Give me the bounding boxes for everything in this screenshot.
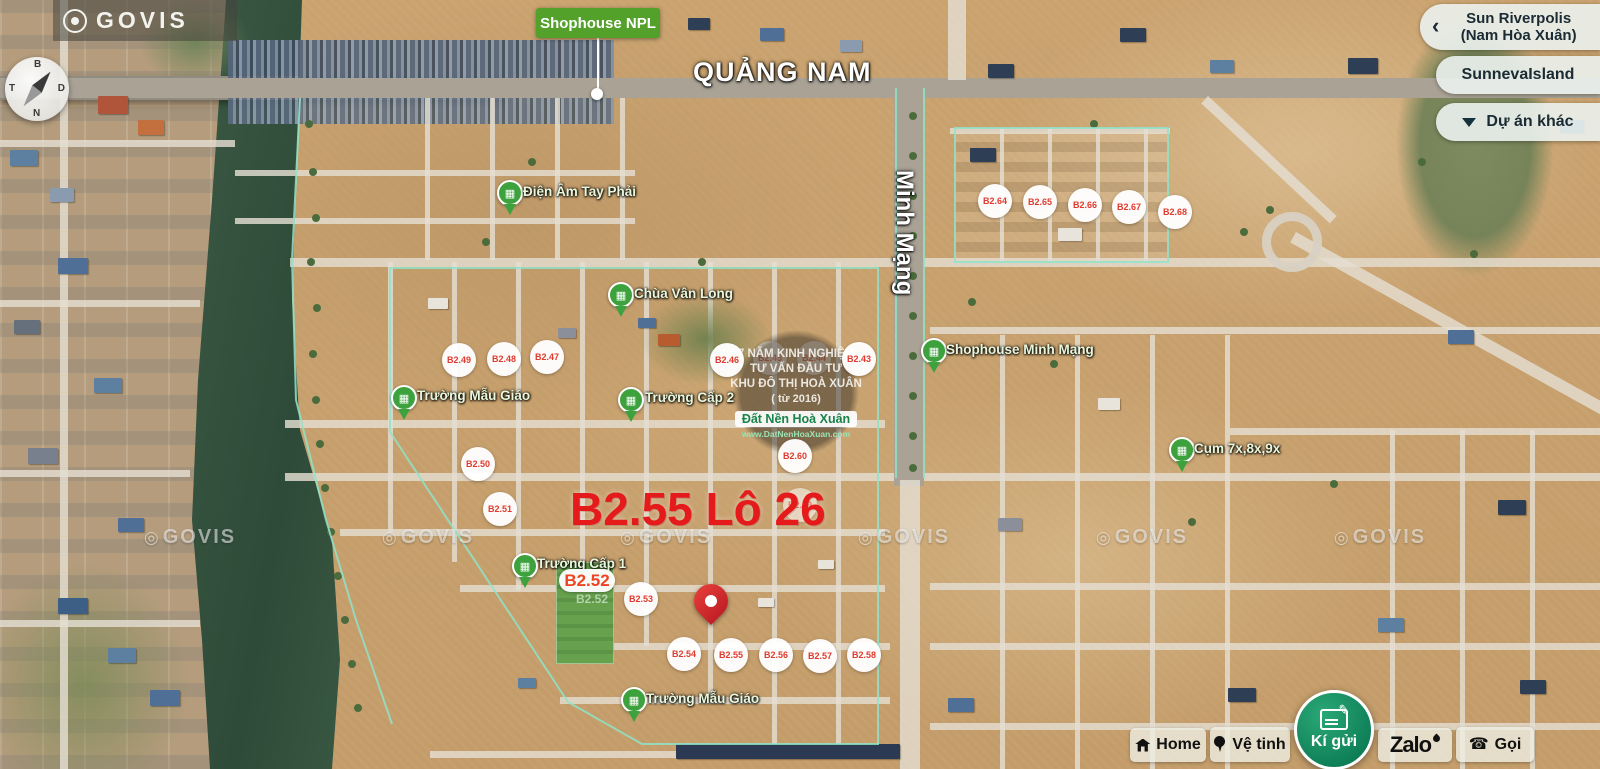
road	[452, 262, 457, 562]
pin-tail	[628, 711, 640, 722]
call-button-label: Gọi	[1495, 736, 1522, 754]
building	[98, 96, 128, 114]
home-icon	[1135, 739, 1150, 752]
poi-pin-truong-mau-giao-tay[interactable]: ▦	[391, 385, 417, 421]
diagonal-road	[1201, 96, 1337, 223]
pin-tail	[519, 577, 531, 588]
building	[28, 448, 58, 464]
poi-pin-truong-cap-2[interactable]: ▦	[618, 387, 644, 423]
building	[150, 690, 180, 706]
compass-north-label: B	[34, 59, 41, 70]
lot-badge-b2-53[interactable]: B2.53	[624, 582, 658, 616]
lot-badge-b2-51[interactable]: B2.51	[483, 492, 517, 526]
building	[818, 560, 834, 569]
note-pencil-icon: ✎	[1320, 709, 1348, 730]
lot-badge-b2-44[interactable]: B2.44	[797, 341, 831, 375]
building	[1098, 398, 1120, 410]
satellite-button-label: Vệ tinh	[1232, 736, 1285, 754]
flag-shophouse-npl[interactable]: Shophouse NPL	[536, 8, 660, 38]
poi-pin-cum-7x-8x-9x[interactable]: ▦	[1169, 437, 1195, 473]
school-pin-icon: ▦	[608, 282, 634, 308]
building	[840, 40, 862, 52]
building	[758, 598, 774, 607]
road	[900, 480, 920, 769]
building	[638, 318, 656, 328]
building	[518, 678, 536, 688]
school-pin-icon: ▦	[1169, 437, 1195, 463]
building	[988, 64, 1014, 78]
road	[930, 327, 1600, 334]
poi-label-shophouse-minh-mang: Shophouse Minh Mạng	[946, 342, 1094, 357]
watermark-line: KHU ĐÔ THỊ HOÀ XUÂN	[730, 377, 862, 392]
school-pin-icon: ▦	[497, 180, 523, 206]
tree-cluster	[0, 0, 8, 8]
road	[620, 98, 625, 260]
chevron-down-icon	[1462, 118, 1476, 127]
building	[658, 334, 680, 346]
road	[1075, 335, 1080, 769]
road	[1390, 430, 1395, 769]
road	[235, 218, 635, 224]
building	[10, 150, 38, 166]
lot-badge-b2-57[interactable]: B2.57	[803, 639, 837, 673]
call-button[interactable]: ☎ Gọi	[1456, 727, 1534, 762]
lot-badge-b2-64[interactable]: B2.64	[978, 184, 1012, 218]
poi-label-truong-cap-2: Trường Cấp 2	[645, 390, 734, 405]
chevron-left-icon: ‹	[1432, 13, 1439, 39]
road	[1000, 335, 1005, 769]
lot-badge-b2-54[interactable]: B2.54	[667, 637, 701, 671]
watermark-website: www.DatNenHoaXuan.com	[742, 429, 850, 439]
pin-tail	[1176, 461, 1188, 472]
road	[490, 98, 495, 260]
shophouse-rooftops	[228, 40, 614, 78]
road	[1530, 430, 1535, 769]
compass-east-label: D	[58, 83, 65, 94]
govis-watermark: GOVIS	[1310, 526, 1450, 549]
consign-button[interactable]: ✎ Kí gửi	[1294, 690, 1374, 769]
pin-tail	[928, 362, 940, 373]
project-button-label: Dự án khác	[1486, 113, 1573, 131]
road	[60, 0, 68, 769]
road	[285, 420, 885, 428]
project-button-label: Sun Riverpolis (Nam Hòa Xuân)	[1443, 10, 1600, 44]
road	[1150, 335, 1155, 769]
poi-label-truong-mau-giao-tay: Trường Mẫu Giáo	[417, 388, 530, 403]
pin-tail	[398, 409, 410, 420]
building	[1058, 228, 1082, 241]
govis-watermark: GOVIS	[358, 526, 498, 549]
building	[1348, 58, 1378, 74]
building	[94, 378, 122, 393]
roundabout	[1262, 212, 1322, 272]
road	[235, 170, 635, 176]
zalo-speech-tail-icon	[1432, 733, 1442, 743]
building	[998, 518, 1022, 531]
building	[1498, 500, 1526, 515]
poi-label-truong-mau-giao-nam: Trường Mẫu Giáo	[646, 691, 759, 706]
lot-badge-b2-49[interactable]: B2.49	[442, 343, 476, 377]
lot-badge-b2-46[interactable]: B2.46	[710, 343, 744, 377]
road	[948, 0, 966, 80]
lot-badge-b2-58[interactable]: B2.58	[847, 638, 881, 672]
lot-badge-b2-56[interactable]: B2.56	[759, 638, 793, 672]
phone-icon: ☎	[1469, 737, 1489, 753]
road	[1230, 428, 1600, 435]
lot-badge-b2-66[interactable]: B2.66	[1068, 188, 1102, 222]
building	[1210, 60, 1234, 73]
building	[760, 28, 784, 41]
street-label-quang-nam: QUẢNG NAM	[693, 57, 872, 88]
govis-watermark: GOVIS	[834, 526, 974, 549]
compass[interactable]: B D N T	[5, 57, 69, 121]
road	[1460, 430, 1465, 769]
road	[950, 128, 1170, 134]
lot-badge-b2-52-large[interactable]: B2.52	[559, 569, 615, 592]
project-button-other-projects[interactable]: Dự án khác	[1436, 103, 1600, 141]
building	[58, 598, 88, 614]
pin-tail	[504, 204, 516, 215]
govis-watermark: GOVIS	[120, 526, 260, 549]
flag-leader-line	[597, 38, 599, 90]
building	[58, 258, 88, 274]
road	[0, 470, 190, 477]
map-pin-icon	[1214, 736, 1226, 753]
satellite-toggle-button[interactable]: Vệ tinh	[1210, 727, 1290, 762]
building	[970, 148, 996, 162]
selected-lot-title: B2.55 Lô 26	[570, 482, 826, 536]
river-bank-vegetation	[0, 556, 210, 769]
home-button-label: Home	[1156, 736, 1200, 754]
project-button-sunneva-island[interactable]: SunnevaIsland	[1436, 56, 1600, 94]
lot-badge-b2-47[interactable]: B2.47	[530, 340, 564, 374]
lot-badge-b2-67[interactable]: B2.67	[1112, 190, 1146, 224]
brand-bar: GOVIS	[53, 0, 237, 41]
building	[558, 328, 576, 338]
consign-button-label: Kí gửi	[1311, 733, 1357, 751]
lot-badge-b2-68[interactable]: B2.68	[1158, 195, 1192, 229]
poi-pin-chua-van-long[interactable]: ▦	[608, 282, 634, 318]
road	[0, 140, 235, 147]
building	[108, 648, 136, 663]
building	[1228, 688, 1256, 702]
school-pin-icon: ▦	[618, 387, 644, 413]
watermark-line: ( từ 2016)	[771, 392, 821, 407]
lot-badge-b2-43[interactable]: B2.43	[842, 342, 876, 376]
building	[138, 120, 164, 135]
building	[1520, 680, 1546, 694]
pond	[1396, 14, 1554, 276]
govis-logo-icon	[63, 9, 87, 33]
road	[1225, 335, 1230, 769]
building	[50, 188, 74, 202]
road	[516, 262, 521, 590]
building	[1378, 618, 1404, 632]
lot-ghost-label-b2-52: B2.52	[576, 592, 608, 606]
road	[930, 583, 1600, 590]
poi-label-chua-van-long: Chùa Vân Long	[634, 286, 733, 301]
pin-tail	[615, 306, 627, 317]
poi-pin-truong-mau-giao-nam[interactable]: ▦	[621, 687, 647, 723]
building	[1448, 330, 1474, 344]
govis-logo-text: GOVIS	[96, 7, 189, 34]
lot-badge-b2-60[interactable]: B2.60	[778, 439, 812, 473]
school-pin-icon: ▦	[621, 687, 647, 713]
govis-watermark: GOVIS	[1072, 526, 1212, 549]
road	[930, 643, 1600, 650]
pin-tail	[625, 411, 637, 422]
building	[688, 18, 710, 30]
school-pin-icon: ▦	[512, 553, 538, 579]
zalo-button[interactable]: Zalo	[1378, 728, 1452, 762]
building	[948, 698, 974, 712]
road	[555, 98, 560, 260]
poi-label-cum-7x-8x-9x: Cụm 7x,8x,9x	[1194, 441, 1280, 456]
school-pin-icon: ▦	[921, 338, 947, 364]
poi-pin-truong-cap-1[interactable]: ▦	[512, 553, 538, 589]
street-label-minh-mang: Minh Mạng	[890, 170, 918, 295]
flag-anchor-dot	[591, 88, 603, 100]
building	[1120, 28, 1146, 42]
road	[0, 620, 200, 627]
road	[290, 258, 1600, 267]
building	[428, 298, 448, 309]
road	[836, 262, 841, 754]
lot-badge-b2-65[interactable]: B2.65	[1023, 185, 1057, 219]
building	[14, 320, 40, 334]
poi-label-dien-am-tay-phai: Điện Âm Tay Phải	[523, 184, 636, 199]
road	[1144, 128, 1148, 262]
lot-badge-b2-48[interactable]: B2.48	[487, 342, 521, 376]
compass-west-label: T	[9, 83, 15, 94]
road	[0, 300, 200, 307]
poi-pin-shophouse-minh-mang[interactable]: ▦	[921, 338, 947, 374]
school-pin-icon: ▦	[391, 385, 417, 411]
lot-badge-b2-45[interactable]: B2.45	[753, 341, 787, 375]
map-canvas[interactable]: QUẢNG NAM Minh Mạng GOVISGOVISGOVISGOVIS…	[0, 0, 1600, 769]
lot-badge-b2-50[interactable]: B2.50	[461, 447, 495, 481]
compass-south-label: N	[33, 108, 40, 119]
poi-pin-dien-am-tay-phai[interactable]: ▦	[497, 180, 523, 216]
lot-badge-b2-55[interactable]: B2.55	[714, 638, 748, 672]
zalo-logo: Zalo	[1390, 732, 1431, 758]
home-button[interactable]: Home	[1130, 728, 1206, 762]
road	[425, 98, 430, 260]
project-button-sun-riverpolis[interactable]: ‹ Sun Riverpolis (Nam Hòa Xuân)	[1420, 4, 1600, 50]
building	[676, 744, 900, 759]
